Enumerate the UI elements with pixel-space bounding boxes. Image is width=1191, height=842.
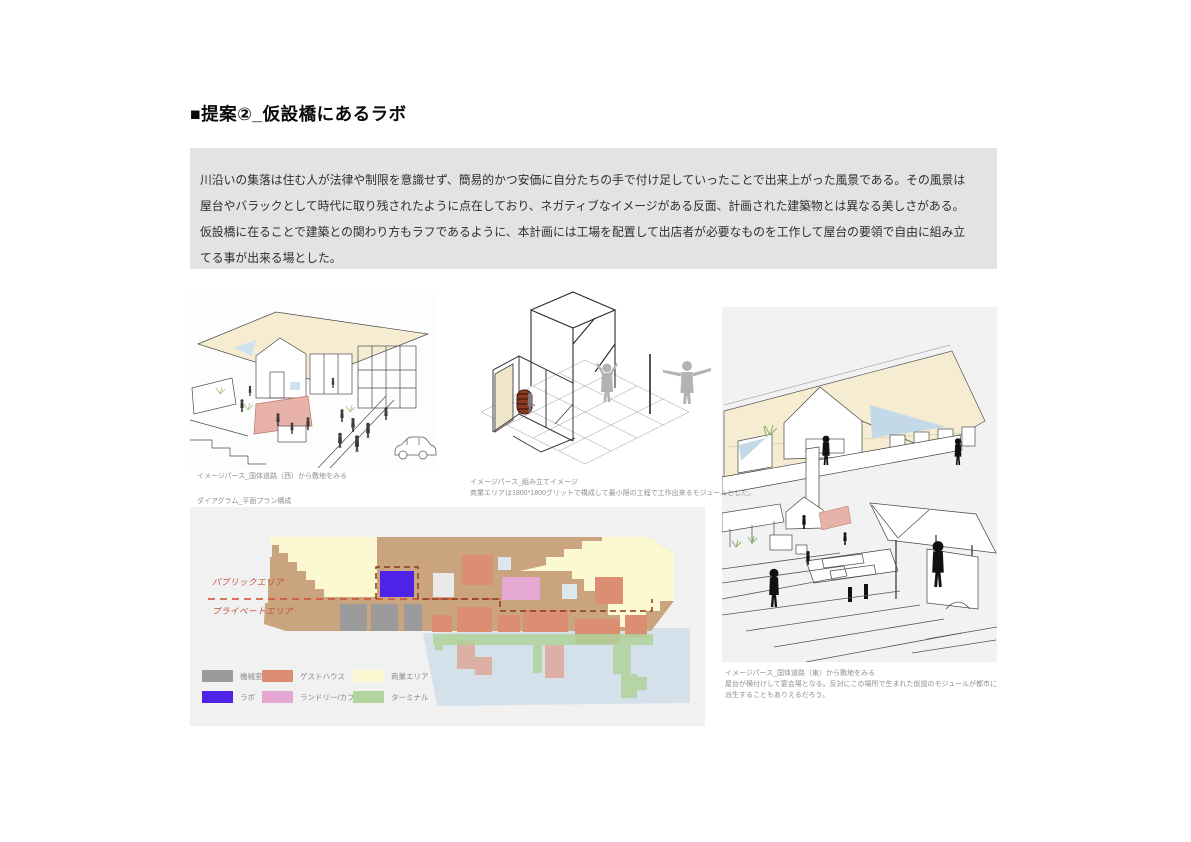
caption-assembly-note: 商業エリアは1800*1800グリットで構成して最小限の工程で工作出来るモジュー…	[470, 488, 755, 499]
page-title: ■提案②_仮設橋にあるラボ	[190, 101, 407, 126]
caption-west: イメージパース_国体道路（西）から敷地をみる	[197, 471, 347, 482]
intro-text-block: 川沿いの集落は住む人が法律や制限を意識せず、簡易的かつ安価に自分たちの手で付け足…	[190, 148, 997, 269]
plan-diagram-panel: パブリックエリア プライベートエリア 機械室 ゲストハウス 商業エリア ラボ ラ…	[190, 507, 705, 726]
legend-item: ターミナル	[353, 691, 429, 703]
zone-open-block	[562, 584, 577, 599]
legend-item: 商業エリア	[353, 670, 429, 682]
caption-east: イメージパース_国体道路（東）から敷地をみる 屋台が横付けして宴会場となる。反対…	[725, 668, 997, 701]
perspective-west-image	[190, 292, 437, 468]
intro-line: 屋台やバラックとして時代に取り残されたように点在しており、ネガティブなイメージが…	[200, 193, 987, 219]
caption-diagram: ダイアグラム_平面プラン構成	[197, 496, 291, 507]
perspective-east-image	[722, 307, 997, 662]
legend-item: ランドリー/カフェ	[262, 691, 353, 703]
assembly-sketch	[455, 284, 715, 474]
intro-line: てる事が出来る場とした。	[200, 245, 987, 271]
legend-item: ゲストハウス	[262, 670, 353, 682]
legend-label: 商業エリア	[391, 671, 429, 682]
legend-swatch-laundry	[262, 691, 293, 703]
private-area-label: プライベートエリア	[212, 605, 293, 617]
legend-swatch-guesthouse	[262, 670, 293, 682]
caption-assembly: イメージパース_組み立てイメージ 商業エリアは1800*1800グリットで構成し…	[470, 477, 755, 499]
zone-open-block	[498, 557, 511, 570]
legend-swatch-terminal	[353, 691, 384, 703]
east-sketch	[722, 307, 997, 662]
legend-label: ラボ	[240, 692, 255, 703]
presentation-board: { "page": { "title": "■提案②_仮設橋にあるラボ" }, …	[0, 0, 1191, 842]
caption-east-title: イメージパース_国体道路（東）から敷地をみる	[725, 668, 997, 679]
intro-line: 仮設橋に在ることで建築との関わり方もラフであるように、本計画には工場を配置して出…	[200, 219, 987, 245]
zone-machine-rooms	[340, 604, 422, 631]
legend-swatch-machine	[202, 670, 233, 682]
public-area-label: パブリックエリア	[212, 576, 284, 588]
assembly-diagram-image	[455, 284, 715, 474]
zone-open-block	[433, 573, 454, 597]
legend-label: ターミナル	[391, 692, 429, 703]
legend-label: 機械室	[240, 671, 263, 682]
plan-legend: 機械室 ゲストハウス 商業エリア ラボ ランドリー/カフェ ターミナル	[202, 670, 429, 703]
zone-laundry-cafe	[502, 577, 540, 600]
legend-swatch-commercial	[353, 670, 384, 682]
caption-east-note: 屋台が横付けして宴会場となる。反対にこの場所で生まれた仮設のモジュールが都市に派…	[725, 679, 997, 701]
legend-swatch-lab	[202, 691, 233, 703]
intro-line: 川沿いの集落は住む人が法律や制限を意識せず、簡易的かつ安価に自分たちの手で付け足…	[200, 167, 987, 193]
zone-lab	[380, 571, 414, 597]
legend-item: 機械室	[202, 670, 262, 682]
legend-item: ラボ	[202, 691, 262, 703]
caption-assembly-title: イメージパース_組み立てイメージ	[470, 477, 755, 488]
west-sketch	[190, 292, 437, 468]
legend-label: ゲストハウス	[300, 671, 345, 682]
